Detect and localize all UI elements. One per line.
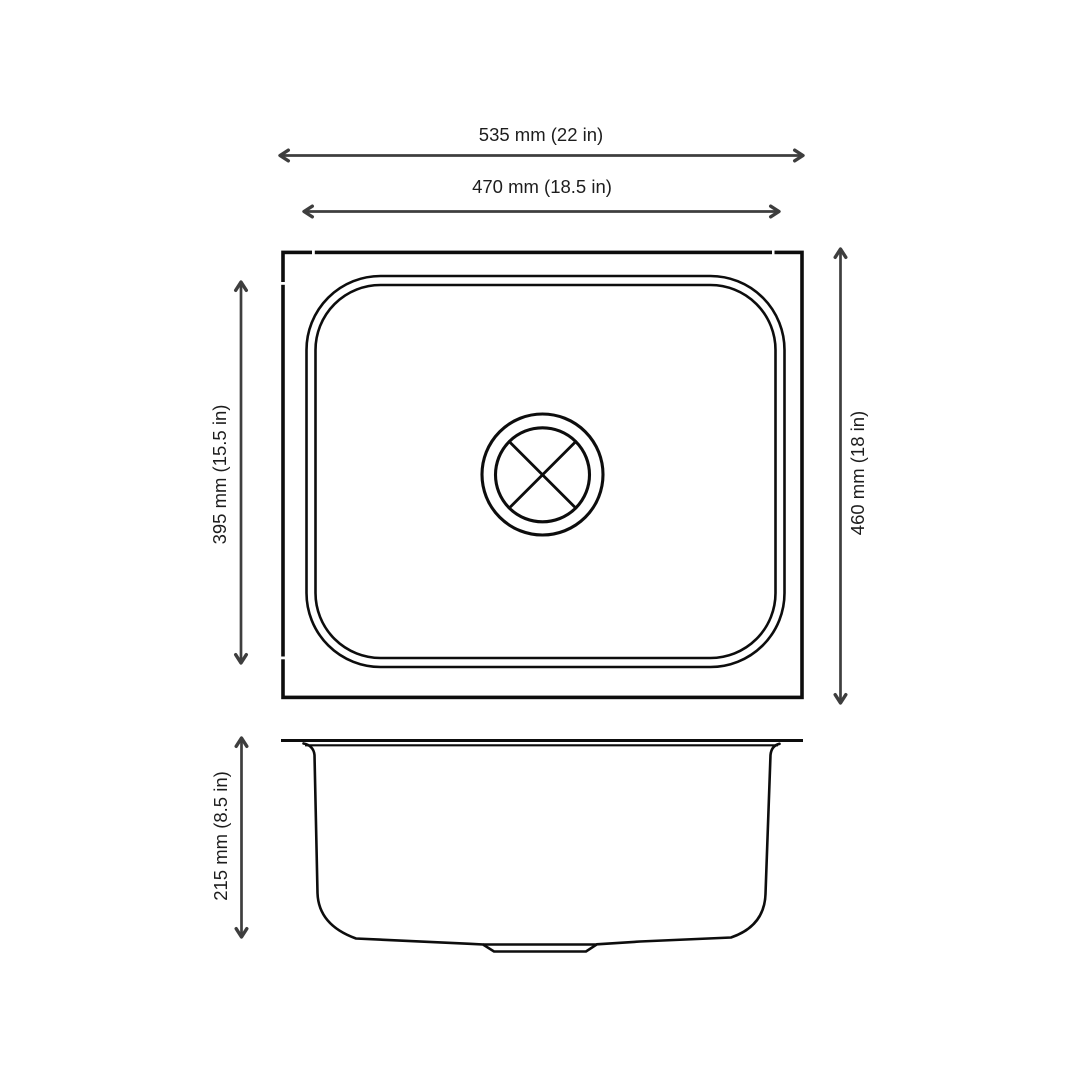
svg-text:470 mm (18.5 in): 470 mm (18.5 in) xyxy=(472,176,612,197)
svg-text:535 mm (22 in): 535 mm (22 in) xyxy=(479,124,603,145)
svg-text:215 mm (8.5 in): 215 mm (8.5 in) xyxy=(210,771,231,901)
svg-text:460 mm (18 in): 460 mm (18 in) xyxy=(847,411,868,535)
svg-text:395 mm (15.5 in): 395 mm (15.5 in) xyxy=(209,405,230,545)
